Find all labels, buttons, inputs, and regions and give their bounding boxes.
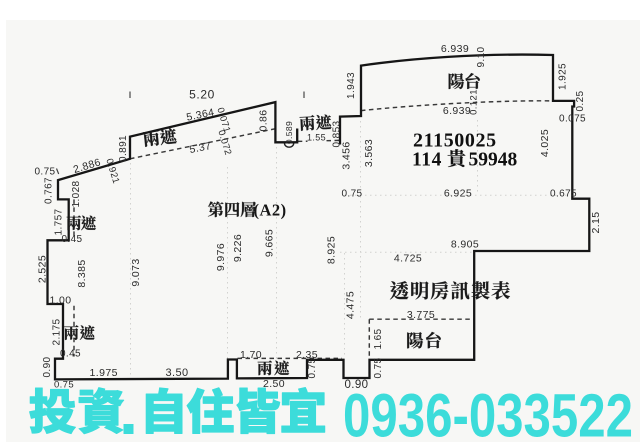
svg-text:2.15: 2.15 — [590, 211, 602, 233]
svg-text:0.75: 0.75 — [54, 380, 74, 391]
svg-text:8.905: 8.905 — [451, 239, 479, 251]
svg-text:2.525: 2.525 — [36, 255, 48, 283]
svg-text:0.86: 0.86 — [258, 109, 270, 131]
svg-text:1.925: 1.925 — [558, 63, 569, 90]
svg-text:6.925: 6.925 — [444, 188, 472, 200]
svg-text:9.10: 9.10 — [476, 46, 487, 67]
svg-text:1.757: 1.757 — [54, 208, 65, 235]
svg-text:6.939: 6.939 — [443, 105, 471, 117]
svg-text:0.90: 0.90 — [42, 356, 53, 377]
svg-text:5.20: 5.20 — [189, 88, 215, 102]
svg-text:9.226: 9.226 — [232, 234, 244, 262]
svg-text:1.55: 1.55 — [307, 133, 326, 143]
svg-text:4.025: 4.025 — [539, 129, 551, 157]
svg-text:0.45: 0.45 — [61, 234, 82, 245]
svg-text:0.767: 0.767 — [44, 177, 55, 204]
svg-text:4.725: 4.725 — [394, 253, 422, 265]
svg-text:6.939: 6.939 — [441, 43, 469, 55]
svg-text:1.70: 1.70 — [240, 349, 262, 361]
svg-text:1.975: 1.975 — [90, 367, 118, 379]
svg-text:1.943: 1.943 — [346, 72, 357, 99]
svg-text:0.891: 0.891 — [118, 135, 129, 162]
svg-text:2.175: 2.175 — [52, 318, 63, 345]
svg-text:59948: 59948 — [469, 150, 518, 171]
svg-text:0.121: 0.121 — [469, 89, 480, 115]
svg-text:1.028: 1.028 — [71, 180, 82, 207]
svg-text:9.976: 9.976 — [215, 243, 227, 271]
svg-text:9.665: 9.665 — [264, 229, 276, 257]
svg-text:0.45: 0.45 — [60, 349, 81, 360]
svg-text:0.75: 0.75 — [34, 167, 55, 178]
svg-text:4.475: 4.475 — [344, 291, 356, 319]
svg-text:0.589: 0.589 — [284, 121, 294, 144]
svg-text:0.675: 0.675 — [550, 189, 577, 200]
svg-text:21150025: 21150025 — [413, 130, 497, 152]
svg-text:0.75: 0.75 — [341, 189, 362, 200]
svg-text:2.50: 2.50 — [263, 378, 285, 390]
svg-text:(A2): (A2) — [254, 201, 287, 220]
svg-text:0.075: 0.075 — [559, 114, 586, 125]
svg-text:114: 114 — [412, 150, 442, 171]
svg-text:9.073: 9.073 — [130, 258, 142, 286]
svg-text:8.925: 8.925 — [325, 236, 337, 264]
svg-text:0936-033522: 0936-033522 — [343, 382, 633, 442]
svg-text:0.75: 0.75 — [307, 357, 318, 378]
svg-text:3.50: 3.50 — [165, 367, 188, 379]
svg-text:3.563: 3.563 — [363, 139, 375, 167]
svg-text:0.75: 0.75 — [373, 357, 384, 378]
svg-text:0.25: 0.25 — [575, 90, 586, 111]
svg-text:8.385: 8.385 — [76, 259, 88, 287]
svg-text:1.00: 1.00 — [49, 295, 71, 307]
svg-text:3.775: 3.775 — [407, 309, 435, 321]
svg-text:1.65: 1.65 — [373, 328, 384, 349]
svg-text:3.456: 3.456 — [341, 141, 353, 169]
